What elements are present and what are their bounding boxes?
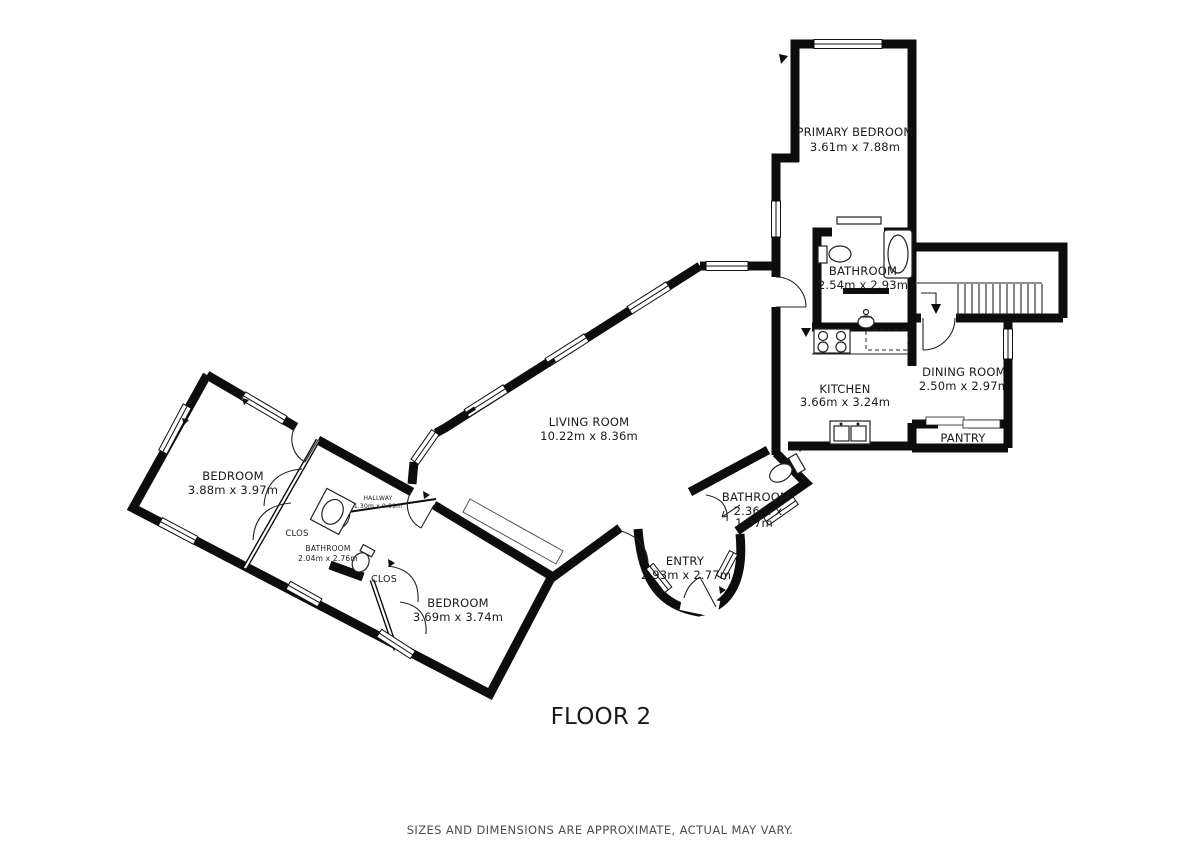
room-label-bathroom-entry: BATHROOM: [722, 490, 790, 504]
stove-icon: [812, 329, 908, 354]
kitchen-sink-icon: [830, 421, 870, 444]
room-dims-kitchen: 3.66m x 3.24m: [800, 395, 890, 409]
room-dims-hallway: 1.30m x 0.99m: [354, 503, 402, 510]
door-arrow-icon: [423, 491, 430, 499]
stair-direction-arrow: [931, 304, 941, 314]
room-label-living-room: LIVING ROOM: [549, 415, 629, 429]
room-label-primary-bedroom: PRIMARY BEDROOM: [796, 125, 913, 139]
floor-plan-page: PRIMARY BEDROOM 3.61m x 7.88m BATHROOM 2…: [0, 0, 1200, 849]
door-arrow-icon: [801, 328, 811, 337]
room-dims-entry: 2.93m x 2.77m: [641, 568, 731, 582]
room-label-bathroom-west: BATHROOM: [305, 544, 350, 553]
room-label-closet-b: CLOS: [371, 574, 397, 585]
room-label-pantry: PANTRY: [940, 431, 986, 445]
room-dims-primary-bedroom: 3.61m x 7.88m: [810, 140, 900, 154]
room-label-kitchen: KITCHEN: [819, 382, 870, 396]
room-dims-dining-room: 2.50m x 2.97m: [919, 379, 1009, 393]
room-dims-bathroom-west: 2.04m x 2.76m: [298, 554, 358, 563]
staircase: [917, 283, 1042, 315]
room-label-bedroom-south: BEDROOM: [427, 596, 488, 610]
room-dims-living-room: 10.22m x 8.36m: [540, 429, 638, 443]
room-label-entry: ENTRY: [666, 554, 705, 568]
door-arrow-icon: [779, 54, 788, 64]
dishwasher-icon: [866, 330, 908, 350]
room-dims-bedroom-south: 3.69m x 3.74m: [413, 610, 503, 624]
sink-icon: [858, 310, 874, 329]
window-sill-bars: [446, 321, 617, 427]
vanity-sink-icon-west: [310, 488, 355, 534]
room-dims-bedroom-west: 3.88m x 3.97m: [188, 483, 278, 497]
room-dims-bathroom-primary: 2.54m x 2.93m: [818, 278, 908, 292]
room-label-bathroom-primary: BATHROOM: [829, 264, 897, 278]
door-arrow-icon: [388, 559, 395, 567]
toilet-icon: [818, 246, 851, 263]
room-label-closet-a: CLOS: [285, 529, 308, 539]
floor-title: FLOOR 2: [551, 704, 652, 730]
room-label-dining-room: DINING ROOM: [922, 365, 1006, 379]
entry-door-gap: [680, 593, 721, 618]
disclaimer-text: SIZES AND DIMENSIONS ARE APPROXIMATE, AC…: [407, 823, 794, 837]
room-label-bedroom-west: BEDROOM: [202, 469, 263, 483]
room-dims-bathroom-entry-2: 1.37m: [735, 516, 773, 530]
bathroom-door-leaf: [837, 217, 881, 224]
floor-plan-canvas: PRIMARY BEDROOM 3.61m x 7.88m BATHROOM 2…: [0, 0, 1200, 849]
room-label-hallway: HALLWAY: [363, 495, 392, 502]
